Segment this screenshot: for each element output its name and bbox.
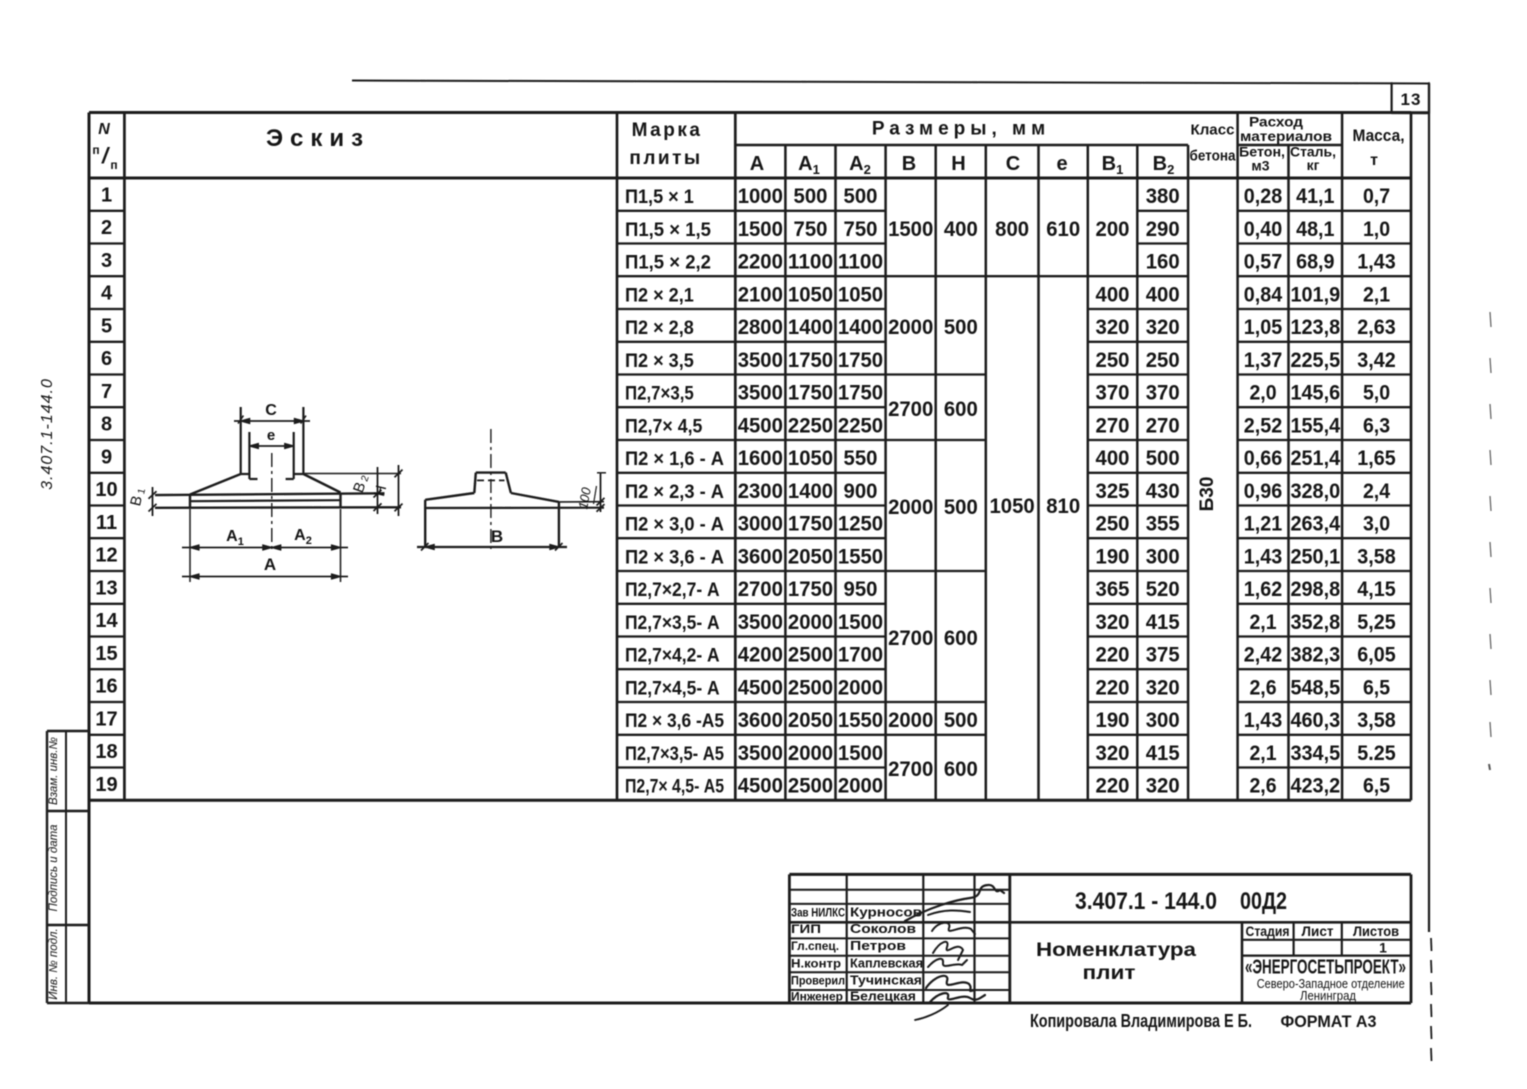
svg-text:00Д2: 00Д2	[1240, 888, 1287, 915]
svg-text:Марка: Марка	[632, 120, 703, 141]
svg-text:1,37: 1,37	[1244, 348, 1282, 372]
svg-text:800: 800	[995, 217, 1029, 241]
svg-text:3,0: 3,0	[1363, 512, 1390, 536]
svg-text:0,84: 0,84	[1244, 282, 1282, 306]
svg-text:П2 × 2,1: П2 × 2,1	[625, 285, 694, 306]
svg-text:155,4: 155,4	[1290, 413, 1340, 437]
svg-text:Лист: Лист	[1302, 924, 1334, 939]
svg-text:П2 × 2,3 - А: П2 × 2,3 - А	[625, 482, 724, 503]
svg-text:1,21: 1,21	[1244, 512, 1282, 536]
svg-text:3.407.1-144.0: 3.407.1-144.0	[39, 378, 56, 490]
svg-text:1000: 1000	[738, 184, 783, 208]
svg-text:м3: м3	[1251, 158, 1269, 174]
svg-text:2200: 2200	[738, 250, 783, 274]
svg-text:500: 500	[944, 708, 978, 732]
svg-text:С: С	[265, 402, 277, 419]
svg-text:3600: 3600	[738, 544, 783, 568]
svg-text:370: 370	[1146, 381, 1180, 405]
svg-text:А: А	[264, 555, 276, 574]
svg-text:190: 190	[1096, 708, 1130, 732]
svg-text:Масса,: Масса,	[1353, 126, 1405, 145]
svg-text:2050: 2050	[788, 708, 833, 732]
svg-text:4: 4	[101, 283, 113, 305]
svg-text:Н.контр: Н.контр	[791, 957, 841, 971]
svg-text:400: 400	[1146, 282, 1180, 306]
svg-text:220: 220	[1096, 643, 1130, 667]
svg-text:14: 14	[95, 610, 118, 632]
svg-text:750: 750	[794, 217, 828, 241]
svg-text:Стадия: Стадия	[1246, 924, 1290, 939]
svg-text:1400: 1400	[788, 479, 833, 503]
svg-text:2000: 2000	[838, 774, 883, 798]
svg-text:2300: 2300	[738, 479, 783, 503]
svg-text:2000: 2000	[888, 495, 933, 519]
svg-text:10: 10	[95, 479, 117, 501]
svg-text:3500: 3500	[738, 741, 783, 765]
svg-text:3000: 3000	[738, 512, 783, 536]
svg-text:П2,7×2,7- А: П2,7×2,7- А	[625, 580, 720, 601]
svg-text:1500: 1500	[838, 610, 883, 634]
svg-text:N: N	[98, 121, 110, 138]
svg-text:2,1: 2,1	[1249, 741, 1276, 765]
svg-text:900: 900	[844, 479, 878, 503]
svg-text:251,4: 251,4	[1290, 446, 1340, 470]
svg-text:Соколов: Соколов	[850, 921, 916, 936]
svg-text:1750: 1750	[788, 381, 833, 405]
svg-text:2700: 2700	[888, 397, 933, 421]
svg-text:2700: 2700	[888, 626, 933, 650]
svg-text:Проверил: Проверил	[791, 974, 845, 988]
svg-text:13: 13	[1401, 90, 1422, 109]
svg-text:355: 355	[1146, 512, 1180, 536]
svg-text:4,15: 4,15	[1357, 577, 1395, 601]
svg-text:430: 430	[1146, 479, 1180, 503]
svg-text:т: т	[1370, 152, 1378, 169]
svg-text:19: 19	[95, 774, 117, 796]
svg-text:6,3: 6,3	[1363, 413, 1390, 437]
svg-text:материалов: материалов	[1240, 128, 1332, 144]
svg-text:610: 610	[1046, 217, 1080, 241]
svg-text:2500: 2500	[788, 643, 833, 667]
svg-text:0,96: 0,96	[1244, 479, 1282, 503]
svg-text:2,1: 2,1	[1363, 282, 1390, 306]
svg-text:ГИП: ГИП	[791, 922, 821, 936]
svg-text:400: 400	[1096, 446, 1130, 470]
svg-text:500: 500	[944, 495, 978, 519]
svg-text:6,05: 6,05	[1357, 643, 1395, 667]
svg-text:16: 16	[95, 676, 117, 698]
svg-text:1,62: 1,62	[1244, 577, 1282, 601]
svg-text:460,3: 460,3	[1290, 708, 1340, 732]
svg-text:1250: 1250	[838, 512, 883, 536]
svg-text:П1,5 × 2,2: П1,5 × 2,2	[625, 253, 711, 274]
svg-text:В: В	[902, 153, 916, 175]
svg-text:250: 250	[1096, 348, 1130, 372]
svg-text:1: 1	[101, 184, 112, 206]
svg-text:плит: плит	[1083, 963, 1136, 984]
svg-text:Листов: Листов	[1353, 924, 1399, 939]
svg-text:3: 3	[101, 250, 112, 272]
svg-text:п: п	[92, 143, 99, 157]
svg-text:1100: 1100	[838, 250, 883, 274]
svg-text:0,66: 0,66	[1244, 446, 1282, 470]
svg-text:6,5: 6,5	[1363, 675, 1390, 699]
svg-text:2000: 2000	[838, 675, 883, 699]
svg-text:П2,7× 4,5: П2,7× 4,5	[625, 416, 703, 437]
svg-text:17: 17	[95, 708, 117, 730]
svg-text:600: 600	[944, 757, 978, 781]
svg-text:1,65: 1,65	[1357, 446, 1395, 470]
svg-text:П2,7×3,5- А: П2,7×3,5- А	[625, 613, 720, 634]
svg-text:2,42: 2,42	[1244, 643, 1282, 667]
svg-text:41,1: 41,1	[1296, 184, 1334, 208]
svg-text:2,6: 2,6	[1249, 774, 1276, 798]
svg-text:2,6: 2,6	[1249, 675, 1276, 699]
svg-text:бетона: бетона	[1190, 148, 1237, 165]
svg-text:П2 × 3,6 -А5: П2 × 3,6 -А5	[625, 711, 724, 732]
svg-text:382,3: 382,3	[1290, 643, 1340, 667]
svg-text:1050: 1050	[788, 446, 833, 470]
svg-text:320: 320	[1096, 610, 1130, 634]
svg-text:548,5: 548,5	[1290, 675, 1340, 699]
svg-text:1500: 1500	[888, 217, 933, 241]
svg-text:550: 550	[844, 446, 878, 470]
svg-text:0,7: 0,7	[1363, 184, 1390, 208]
svg-text:П2,7×3,5: П2,7×3,5	[625, 384, 694, 405]
svg-text:325: 325	[1096, 479, 1130, 503]
svg-text:68,9: 68,9	[1296, 250, 1334, 274]
svg-text:1700: 1700	[838, 643, 883, 667]
svg-text:0,57: 0,57	[1244, 250, 1282, 274]
svg-text:Ленинград: Ленинград	[1300, 989, 1357, 1003]
svg-text:300: 300	[1146, 544, 1180, 568]
svg-text:328,0: 328,0	[1290, 479, 1340, 503]
svg-text:220: 220	[1096, 774, 1130, 798]
svg-text:2,52: 2,52	[1244, 413, 1282, 437]
svg-text:415: 415	[1146, 741, 1180, 765]
svg-text:Петров: Петров	[850, 938, 906, 953]
svg-text:Взам. инв.№: Взам. инв.№	[48, 736, 60, 804]
svg-text:600: 600	[944, 626, 978, 650]
svg-text:7: 7	[101, 381, 112, 403]
svg-text:500: 500	[944, 315, 978, 339]
svg-text:п: п	[110, 158, 117, 172]
svg-text:2050: 2050	[788, 544, 833, 568]
svg-text:6,5: 6,5	[1363, 774, 1390, 798]
svg-text:48,1: 48,1	[1296, 217, 1334, 241]
svg-text:1550: 1550	[838, 544, 883, 568]
svg-text:12: 12	[95, 545, 117, 567]
svg-text:2000: 2000	[888, 315, 933, 339]
svg-text:Номенклатура: Номенклатура	[1036, 940, 1197, 961]
svg-text:1050: 1050	[990, 494, 1035, 518]
svg-text:320: 320	[1096, 741, 1130, 765]
svg-text:плиты: плиты	[629, 148, 702, 169]
svg-text:1750: 1750	[838, 381, 883, 405]
svg-text:3500: 3500	[738, 348, 783, 372]
svg-text:11: 11	[96, 512, 117, 534]
svg-text:2,1: 2,1	[1249, 610, 1276, 634]
svg-text:1050: 1050	[788, 282, 833, 306]
svg-text:500: 500	[1146, 446, 1180, 470]
svg-text:9: 9	[101, 446, 112, 468]
svg-text:423,2: 423,2	[1290, 774, 1340, 798]
svg-text:2000: 2000	[788, 610, 833, 634]
svg-text:1,43: 1,43	[1244, 708, 1282, 732]
svg-text:П2 × 3,0 - А: П2 × 3,0 - А	[625, 515, 724, 536]
svg-text:С: С	[1006, 153, 1020, 175]
svg-text:1100: 1100	[788, 250, 833, 274]
svg-text:950: 950	[844, 577, 878, 601]
svg-text:П1,5 × 1: П1,5 × 1	[625, 187, 694, 208]
svg-text:320: 320	[1146, 774, 1180, 798]
svg-text:2,0: 2,0	[1249, 381, 1276, 405]
svg-text:П2,7×3,5- А5: П2,7×3,5- А5	[625, 744, 724, 765]
svg-text:«ЭНЕРГОСЕТЬПРОЕКТ»: «ЭНЕРГОСЕТЬПРОЕКТ»	[1245, 957, 1406, 979]
svg-text:298,8: 298,8	[1290, 577, 1340, 601]
svg-text:5,0: 5,0	[1363, 381, 1390, 405]
svg-text:кг: кг	[1307, 157, 1320, 173]
svg-text:15: 15	[95, 643, 117, 665]
svg-text:1400: 1400	[788, 315, 833, 339]
svg-text:300: 300	[1146, 708, 1180, 732]
svg-text:352,8: 352,8	[1290, 610, 1340, 634]
svg-text:225,5: 225,5	[1290, 348, 1340, 372]
svg-text:250: 250	[1096, 512, 1130, 536]
svg-text:0,28: 0,28	[1244, 184, 1282, 208]
svg-text:Эскиз: Эскиз	[266, 125, 370, 152]
svg-text:160: 160	[1146, 250, 1180, 274]
svg-text:750: 750	[844, 217, 878, 241]
svg-text:Б30: Б30	[1197, 477, 1218, 512]
svg-text:263,4: 263,4	[1290, 512, 1340, 536]
svg-text:334,5: 334,5	[1290, 741, 1340, 765]
svg-text:Подпись и дата: Подпись и дата	[48, 825, 60, 912]
svg-text:400: 400	[944, 217, 978, 241]
svg-text:1750: 1750	[788, 577, 833, 601]
svg-text:4500: 4500	[738, 675, 783, 699]
svg-text:3500: 3500	[738, 610, 783, 634]
svg-text:190: 190	[1096, 544, 1130, 568]
svg-text:3,58: 3,58	[1357, 544, 1395, 568]
svg-text:2,63: 2,63	[1357, 315, 1395, 339]
svg-text:Копировала Владимирова Е Б.: Копировала Владимирова Е Б.	[1030, 1011, 1252, 1031]
svg-text:ФОРМАТ А3: ФОРМАТ А3	[1281, 1012, 1377, 1031]
svg-text:220: 220	[1096, 675, 1130, 699]
svg-text:П1,5 × 1,5: П1,5 × 1,5	[625, 220, 711, 241]
svg-text:2700: 2700	[738, 577, 783, 601]
svg-text:500: 500	[844, 184, 878, 208]
svg-text:1050: 1050	[838, 282, 883, 306]
svg-text:2700: 2700	[888, 757, 933, 781]
svg-text:2800: 2800	[738, 315, 783, 339]
svg-text:4500: 4500	[738, 774, 783, 798]
svg-text:4200: 4200	[738, 643, 783, 667]
svg-text:18: 18	[95, 741, 117, 763]
svg-text:320: 320	[1096, 315, 1130, 339]
svg-text:П2,7× 4,5- А5: П2,7× 4,5- А5	[625, 777, 724, 798]
svg-text:Класс: Класс	[1191, 122, 1235, 139]
svg-text:380: 380	[1146, 184, 1180, 208]
svg-text:3,58: 3,58	[1357, 708, 1395, 732]
svg-text:Гл.спец.: Гл.спец.	[791, 939, 839, 953]
svg-text:е: е	[267, 427, 275, 444]
svg-text:1750: 1750	[838, 348, 883, 372]
svg-text:320: 320	[1146, 675, 1180, 699]
svg-text:810: 810	[1046, 494, 1080, 518]
svg-text:3600: 3600	[738, 708, 783, 732]
svg-text:270: 270	[1096, 413, 1130, 437]
svg-text:Тучинская: Тучинская	[850, 973, 922, 988]
svg-text:Зав НИЛКС: Зав НИЛКС	[791, 906, 845, 920]
svg-text:5: 5	[101, 315, 112, 337]
svg-text:5.25: 5.25	[1357, 741, 1395, 765]
svg-text:320: 320	[1146, 315, 1180, 339]
svg-text:520: 520	[1146, 577, 1180, 601]
svg-text:4500: 4500	[738, 413, 783, 437]
svg-text:П2,7×4,2- А: П2,7×4,2- А	[625, 646, 720, 667]
svg-text:3,42: 3,42	[1357, 348, 1395, 372]
svg-text:270: 270	[1146, 413, 1180, 437]
svg-text:5,25: 5,25	[1357, 610, 1395, 634]
svg-text:П2 × 1,6 - А: П2 × 1,6 - А	[625, 449, 724, 470]
svg-text:1750: 1750	[788, 348, 833, 372]
svg-text:1,05: 1,05	[1244, 315, 1282, 339]
svg-text:2500: 2500	[788, 774, 833, 798]
svg-text:500: 500	[794, 184, 828, 208]
svg-text:200: 200	[1096, 217, 1130, 241]
svg-text:2250: 2250	[788, 413, 833, 437]
svg-text:Размеры, мм: Размеры, мм	[872, 119, 1050, 140]
svg-text:П2 × 3,5: П2 × 3,5	[625, 351, 694, 372]
svg-text:1550: 1550	[838, 708, 883, 732]
svg-text:А: А	[750, 153, 764, 175]
svg-text:П2,7×4,5- А: П2,7×4,5- А	[625, 678, 720, 699]
svg-text:1600: 1600	[738, 446, 783, 470]
svg-text:2500: 2500	[788, 675, 833, 699]
svg-text:2,4: 2,4	[1363, 479, 1390, 503]
svg-text:П2 × 3,6 - А: П2 × 3,6 - А	[625, 547, 724, 568]
svg-text:3500: 3500	[738, 381, 783, 405]
svg-text:2000: 2000	[788, 741, 833, 765]
svg-text:Н: Н	[951, 153, 965, 175]
svg-text:3.407.1 - 144.0: 3.407.1 - 144.0	[1075, 888, 1217, 915]
svg-text:290: 290	[1146, 217, 1180, 241]
svg-text:1: 1	[1379, 940, 1387, 956]
svg-text:1,43: 1,43	[1244, 544, 1282, 568]
svg-text:2250: 2250	[838, 413, 883, 437]
svg-text:6: 6	[101, 348, 112, 370]
svg-text:1400: 1400	[838, 315, 883, 339]
svg-text:101,9: 101,9	[1290, 282, 1340, 306]
svg-text:1,43: 1,43	[1357, 250, 1395, 274]
svg-text:Белецкая: Белецкая	[850, 989, 916, 1004]
svg-text:2000: 2000	[888, 708, 933, 732]
svg-text:365: 365	[1096, 577, 1130, 601]
svg-text:1500: 1500	[738, 217, 783, 241]
svg-text:0,40: 0,40	[1244, 217, 1282, 241]
svg-text:1,0: 1,0	[1363, 217, 1390, 241]
svg-text:Каплевская: Каплевская	[850, 956, 923, 971]
svg-text:2100: 2100	[738, 282, 783, 306]
svg-text:е: е	[1056, 153, 1067, 175]
svg-text:250,1: 250,1	[1290, 544, 1340, 568]
svg-text:В: В	[491, 527, 503, 546]
svg-text:Инженер: Инженер	[791, 990, 843, 1004]
svg-text:145,6: 145,6	[1290, 381, 1340, 405]
svg-text:П2 × 2,8: П2 × 2,8	[625, 318, 694, 339]
svg-text:400: 400	[1096, 282, 1130, 306]
svg-text:2: 2	[101, 217, 112, 239]
svg-text:600: 600	[944, 397, 978, 421]
svg-text:123,8: 123,8	[1290, 315, 1340, 339]
svg-text:8: 8	[101, 414, 112, 436]
svg-text:375: 375	[1146, 643, 1180, 667]
svg-text:1500: 1500	[838, 741, 883, 765]
svg-text:Инв. № подл.: Инв. № подл.	[48, 928, 60, 999]
svg-text:1750: 1750	[788, 512, 833, 536]
svg-text:415: 415	[1146, 610, 1180, 634]
svg-text:13: 13	[95, 577, 117, 599]
svg-text:250: 250	[1146, 348, 1180, 372]
svg-text:370: 370	[1096, 381, 1130, 405]
